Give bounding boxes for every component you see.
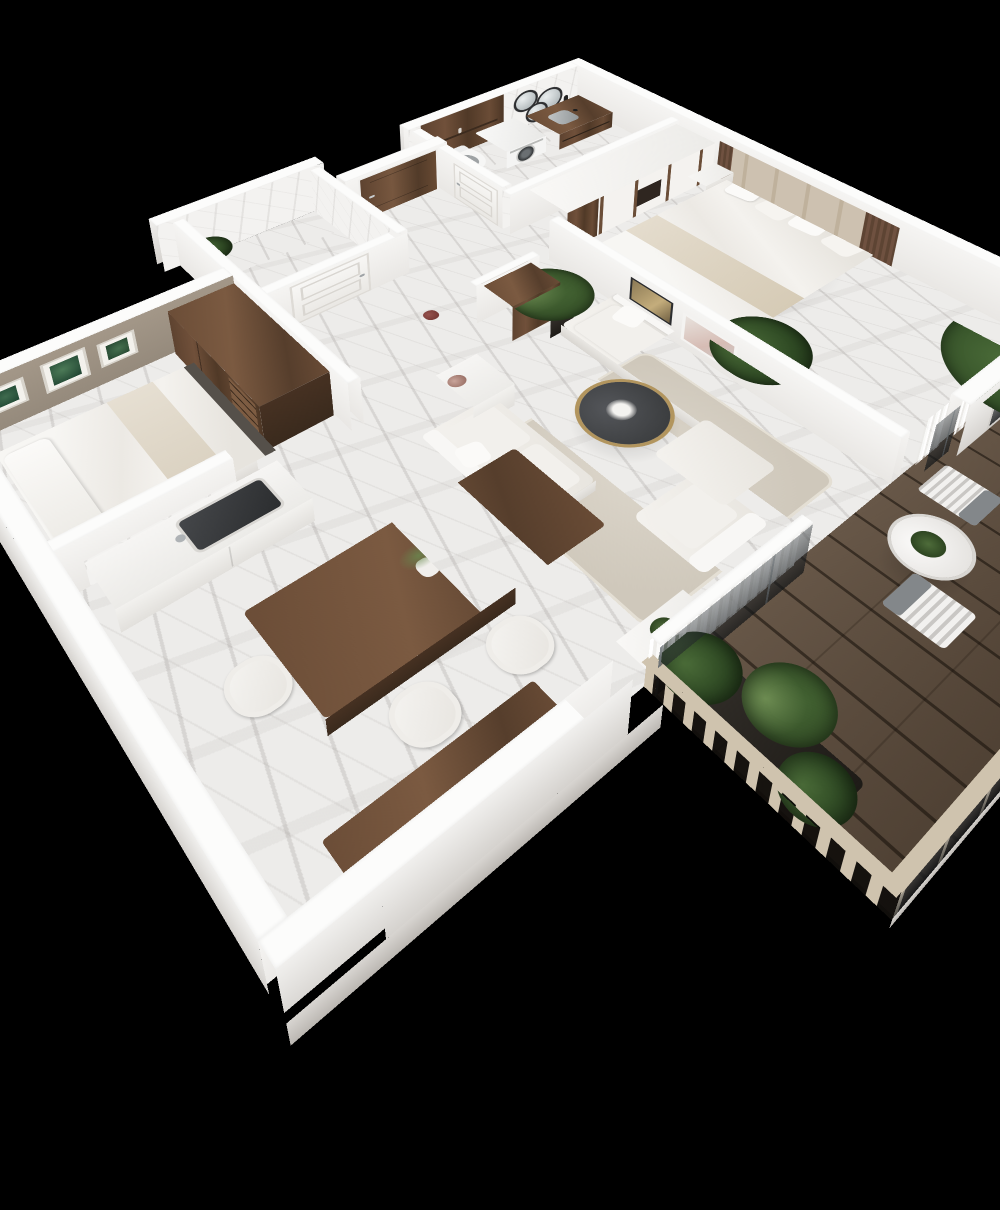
framed-print-1 bbox=[0, 379, 26, 415]
entry-door-handle bbox=[369, 195, 375, 199]
cabinet-line bbox=[329, 489, 332, 509]
framed-print-2 bbox=[43, 349, 88, 391]
bistro-plant bbox=[904, 526, 953, 563]
cabinet-line bbox=[229, 546, 234, 566]
burner bbox=[386, 407, 407, 421]
door-handle bbox=[457, 182, 460, 186]
burner bbox=[360, 438, 382, 453]
black-background bbox=[0, 0, 1000, 1000]
botanical-art-3 bbox=[106, 337, 130, 360]
door-handle bbox=[359, 273, 364, 278]
closet-open-cubby bbox=[637, 179, 662, 207]
framed-print-3 bbox=[99, 332, 135, 366]
burner bbox=[398, 418, 419, 433]
burner bbox=[348, 427, 369, 442]
render-viewport bbox=[0, 0, 1000, 1000]
apartment-3d-model bbox=[0, 100, 1000, 1210]
botanical-art-1 bbox=[0, 385, 19, 409]
botanical-art-2 bbox=[49, 355, 82, 386]
counter-decor-basket bbox=[444, 372, 470, 389]
vessel-basin bbox=[546, 109, 582, 126]
table-decor-flowers bbox=[600, 395, 643, 425]
basin-faucet bbox=[572, 108, 579, 111]
